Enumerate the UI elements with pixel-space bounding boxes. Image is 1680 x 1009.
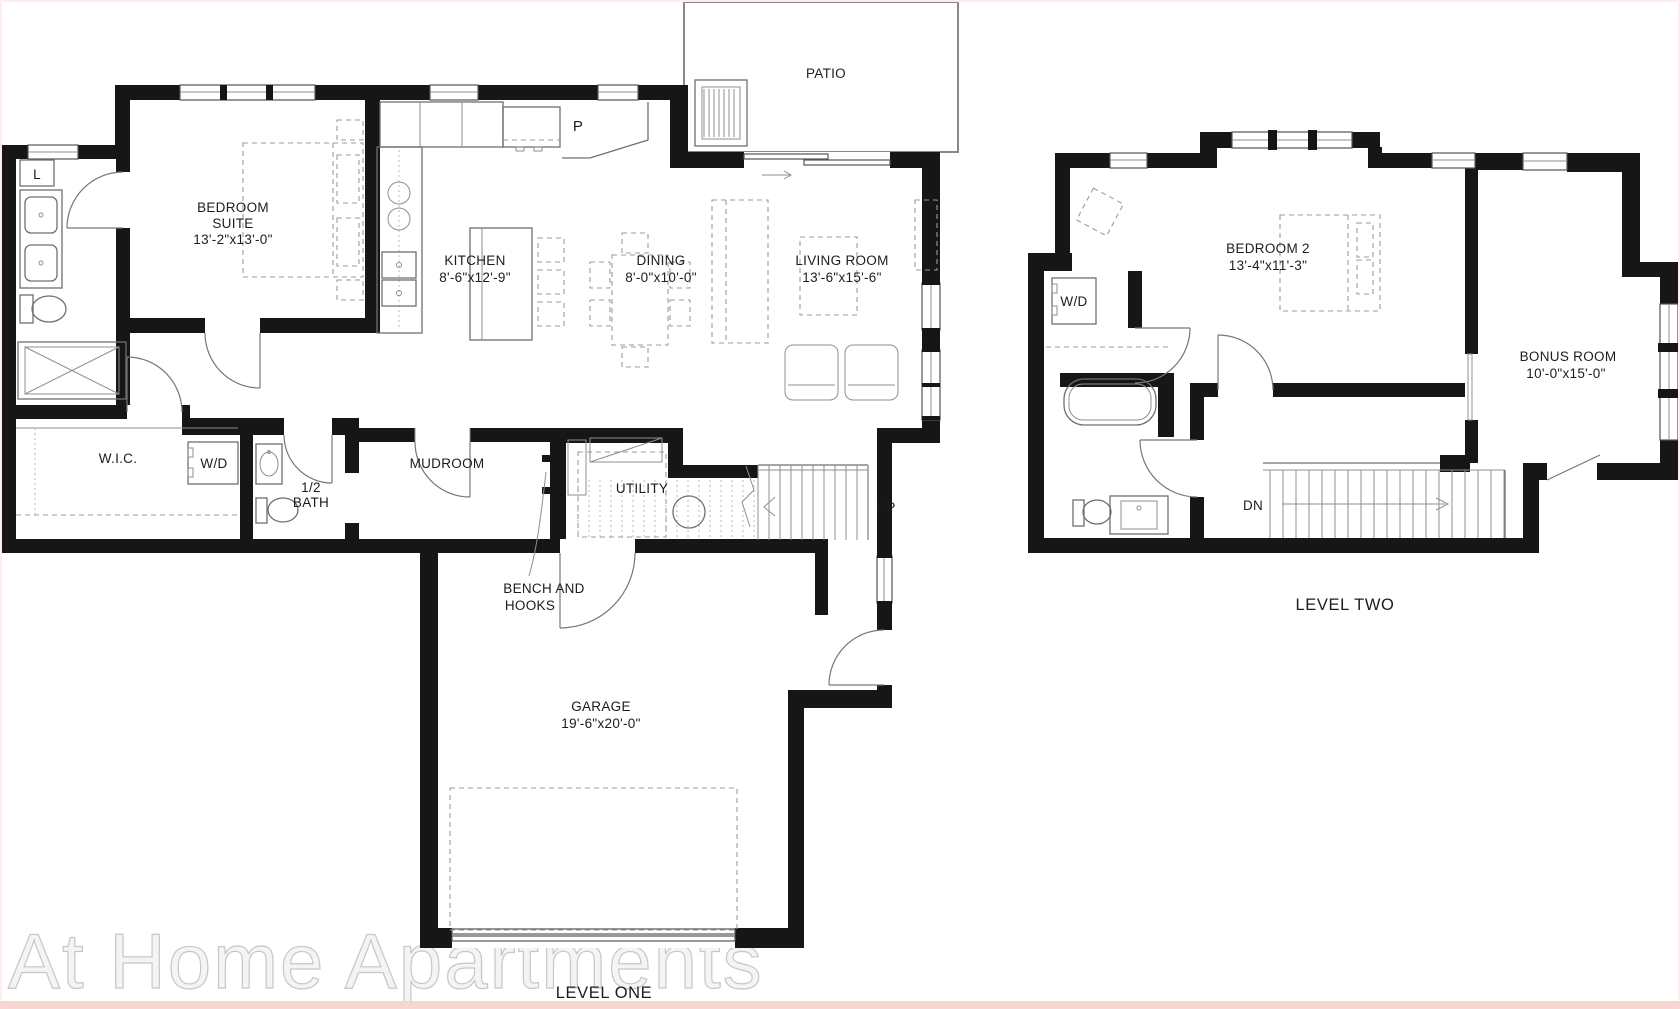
up-label: UP: [876, 500, 895, 515]
garage-dims: 19'-6"x20'-0": [561, 716, 640, 731]
half-bath-label: 1/2: [301, 480, 321, 495]
bedroom-suite-dims: 13'-2"x13'-0": [193, 232, 272, 247]
living-room-dims: 13'-6"x15'-6": [802, 270, 881, 285]
window-glyph: [430, 85, 478, 100]
level-one-labels: PATIO BEDROOM SUITE 13'-2"x13'-0" KITCHE…: [33, 66, 896, 1002]
level-two-stairs: [1263, 463, 1505, 538]
living-room-label: LIVING ROOM: [795, 253, 888, 268]
half-bath-label2: BATH: [293, 495, 329, 510]
dn-label: DN: [1243, 498, 1263, 513]
wic-label: W.I.C.: [99, 451, 138, 466]
level-two-fixtures: [1046, 188, 1380, 534]
bedroom2-label: BEDROOM 2: [1226, 241, 1310, 256]
window-glyph: [1232, 130, 1352, 150]
window-glyph: [922, 348, 940, 420]
mudroom-label: MUDROOM: [410, 456, 485, 471]
window-glyph: [598, 85, 638, 100]
bedroom-suite-label: BEDROOM: [197, 200, 269, 215]
window-glyph: [1658, 304, 1680, 440]
bedroom-suite-label2: SUITE: [212, 216, 253, 231]
linen-label: L: [33, 167, 41, 182]
utility-label: UTILITY: [616, 481, 668, 496]
dining-dims: 8'-0"x10'-0": [625, 270, 697, 285]
kitchen-dims: 8'-6"x12'-9": [439, 270, 511, 285]
sliding-door-glyph: [744, 152, 890, 179]
garage-door-glyph: [452, 928, 735, 948]
patio-label: PATIO: [806, 66, 846, 81]
kitchen-label: KITCHEN: [444, 253, 505, 268]
dining-label: DINING: [636, 253, 685, 268]
level-one-plan: PATIO BEDROOM SUITE 13'-2"x13'-0" KITCHE…: [0, 2, 958, 1002]
window-glyph: [922, 281, 940, 332]
level-two-title: LEVEL TWO: [1296, 596, 1395, 614]
floorplan-canvas: At Home Apartments: [0, 0, 1680, 1009]
level-one-title: LEVEL ONE: [556, 984, 653, 1002]
washer-dryer2-label: W/D: [1060, 294, 1087, 309]
level-two-walls: [1028, 132, 1680, 553]
bonus-room-label: BONUS ROOM: [1520, 349, 1617, 364]
window-glyph: [28, 145, 78, 159]
level-two-labels: BEDROOM 2 13'-4"x11'-3" BONUS ROOM 10'-0…: [1060, 241, 1616, 614]
level-two-plan: BEDROOM 2 13'-4"x11'-3" BONUS ROOM 10'-0…: [1028, 130, 1680, 614]
window-glyph: [1432, 153, 1475, 168]
bench-hooks-label: BENCH AND: [503, 581, 584, 596]
bench-hooks-label2: HOOKS: [505, 598, 555, 613]
window-glyph: [877, 554, 892, 605]
window-glyph: [180, 85, 315, 100]
bonus-room-dims: 10'-0"x15'-0": [1526, 366, 1605, 381]
washer-dryer-label: W/D: [200, 456, 227, 471]
garage-label: GARAGE: [571, 699, 631, 714]
pantry-label: P: [573, 118, 583, 135]
window-glyph: [1110, 153, 1147, 168]
pink-border-left: [0, 0, 2, 1009]
level-one-walls: [0, 85, 940, 948]
pink-border-top: [0, 0, 1680, 2]
floorplan-image: At Home Apartments: [0, 0, 1680, 1009]
pink-border-bottom: [0, 1001, 1680, 1009]
bedroom2-dims: 13'-4"x11'-3": [1229, 258, 1307, 273]
window-glyph: [1523, 153, 1567, 170]
